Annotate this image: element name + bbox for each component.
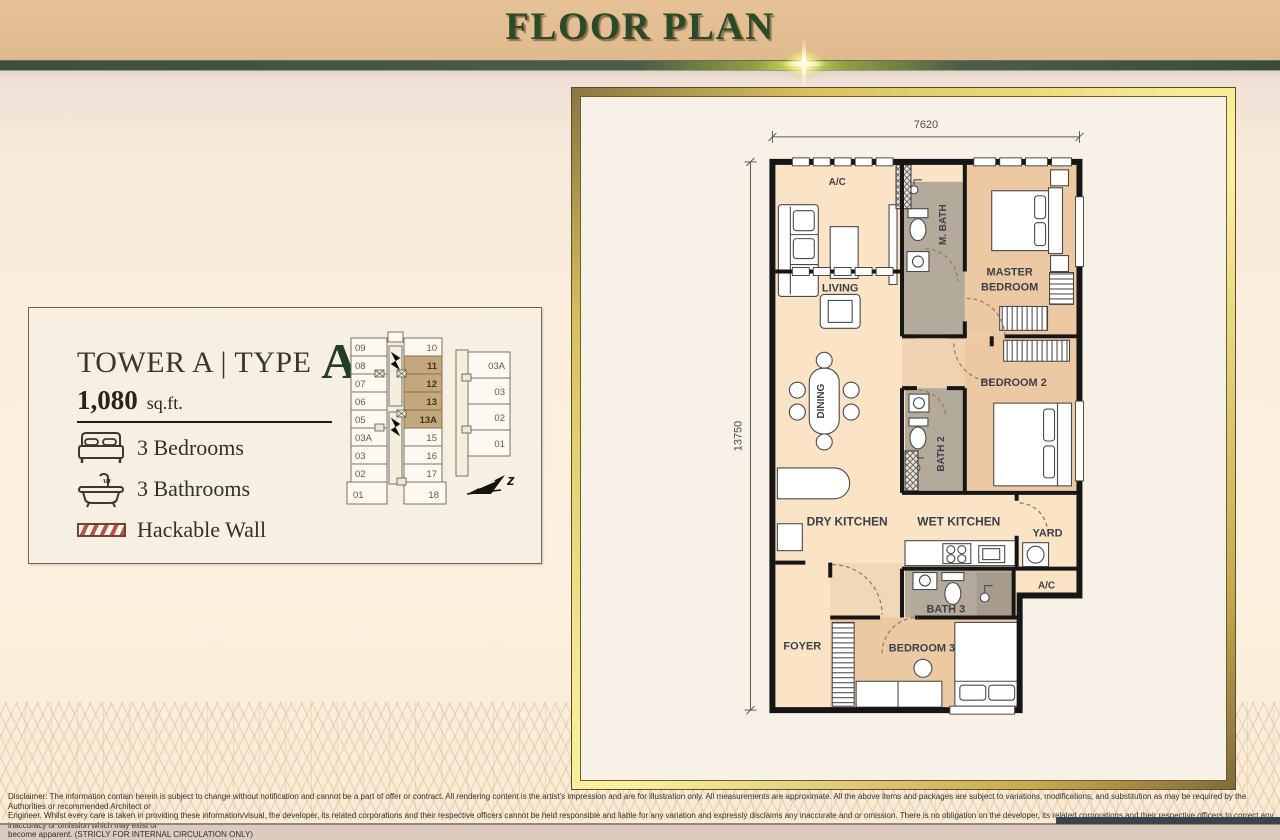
- keyplan-unit: 18: [428, 490, 439, 501]
- keyplan-unit: 10: [426, 343, 437, 354]
- area-unit: sq.ft.: [147, 393, 183, 413]
- floorplan-frame: 7620 13750: [571, 87, 1236, 790]
- keyplan-unit: 09: [355, 343, 366, 354]
- keyplan-unit: 07: [355, 379, 366, 390]
- disclaimer-text: Disclaimer: The information contain here…: [8, 792, 1276, 840]
- unit-info-card: TOWER A | TYPE A 1,080 sq.ft. 3 Bedrooms: [28, 307, 542, 564]
- bathtub-icon: [77, 470, 127, 508]
- feature-bathrooms: 3 Bathrooms: [77, 471, 250, 507]
- keyplan-annex-unit: 03A: [488, 361, 506, 372]
- label-ac-right: A/C: [1038, 581, 1055, 592]
- keyplan-unit: 15: [426, 433, 437, 444]
- unit-area: 1,080 sq.ft.: [77, 385, 183, 416]
- keyplan-unit: 02: [355, 469, 366, 480]
- inner-hall-floor: [830, 563, 902, 618]
- label-dry-kitchen: DRY KITCHEN: [807, 515, 888, 529]
- bed-icon: [77, 431, 127, 465]
- keyplan-unit-highlight: 13A: [420, 415, 438, 426]
- wet-kitchen-counter: [905, 541, 1017, 566]
- north-arrow-icon: z: [467, 472, 515, 494]
- floorplan-canvas: 7620 13750: [580, 96, 1227, 781]
- label-bath3: BATH 3: [926, 603, 965, 615]
- keyplan-unit-highlight: 11: [427, 361, 438, 372]
- label-master-2: BEDROOM: [981, 281, 1038, 293]
- kitchen-cabinet: [777, 524, 802, 551]
- keyplan-unit: 03A: [355, 433, 373, 444]
- label-living: LIVING: [822, 282, 859, 294]
- unit-title: TOWER A | TYPE A: [77, 332, 358, 390]
- card-divider: [77, 421, 332, 423]
- label-bedroom2: BEDROOM 2: [980, 377, 1046, 389]
- keyplan-annex-unit: 02: [494, 413, 505, 424]
- bottom-dark-bar: [1056, 817, 1280, 824]
- keyplan-unit-highlight: 13: [426, 397, 437, 408]
- label-foyer: FOYER: [783, 640, 821, 652]
- hatched-wall-icon: [77, 523, 127, 537]
- dimension-width-label: 7620: [914, 119, 938, 131]
- keyplan-unit-highlight: 12: [426, 379, 437, 390]
- label-dining: DINING: [816, 383, 827, 418]
- keyplan-unit: 01: [353, 490, 364, 501]
- label-ac-top: A/C: [829, 177, 846, 188]
- feature-hackable-wall: Hackable Wall: [77, 512, 266, 548]
- feature-bedrooms: 3 Bedrooms: [77, 430, 244, 466]
- sofa: [778, 205, 818, 297]
- dimension-height-label: 13750: [733, 421, 745, 451]
- kitchen-counter: [777, 468, 849, 499]
- washing-machine: [1023, 543, 1049, 567]
- label-m-bath: M. BATH: [938, 204, 949, 245]
- keyplan-unit: 03: [355, 451, 366, 462]
- label-bedroom3: BEDROOM 3: [889, 642, 955, 654]
- tower-type-label: TOWER A | TYPE: [77, 346, 311, 379]
- label-bath2: BATH 2: [936, 436, 947, 472]
- compass-label: z: [506, 472, 515, 489]
- label-yard: YARD: [1033, 528, 1063, 540]
- keyplan-unit: 05: [355, 415, 366, 426]
- divider-bar: [0, 60, 1280, 71]
- disclaimer-line3: become apparent. (STRICLY FOR INTERNAL C…: [8, 830, 1276, 840]
- keyplan-unit: 08: [355, 361, 366, 372]
- service-shaft: [905, 451, 918, 491]
- feature-label: 3 Bathrooms: [137, 476, 250, 502]
- floorplan-drawing: 7620 13750: [581, 97, 1226, 780]
- keyplan-unit: 06: [355, 397, 366, 408]
- disclaimer-line1: Disclaimer: The information contain here…: [8, 792, 1276, 811]
- keyplan-annex-unit: 03: [494, 387, 505, 398]
- keyplan-unit: 16: [426, 451, 437, 462]
- feature-label: Hackable Wall: [137, 517, 266, 543]
- label-master-1: MASTER: [987, 267, 1033, 279]
- keyplan-unit: 17: [426, 469, 437, 480]
- armchair: [820, 294, 860, 328]
- bedroom2-bed: [994, 403, 1072, 486]
- area-value: 1,080: [77, 385, 138, 415]
- key-plan: 09 08 07 06 05 03A 03 02 01 10 11 12 13 …: [329, 322, 539, 520]
- page-title: FLOOR PLAN: [0, 4, 1280, 49]
- keyplan-annex-unit: 01: [494, 439, 505, 450]
- feature-label: 3 Bedrooms: [137, 435, 244, 461]
- label-wet-kitchen: WET KITCHEN: [917, 515, 1000, 529]
